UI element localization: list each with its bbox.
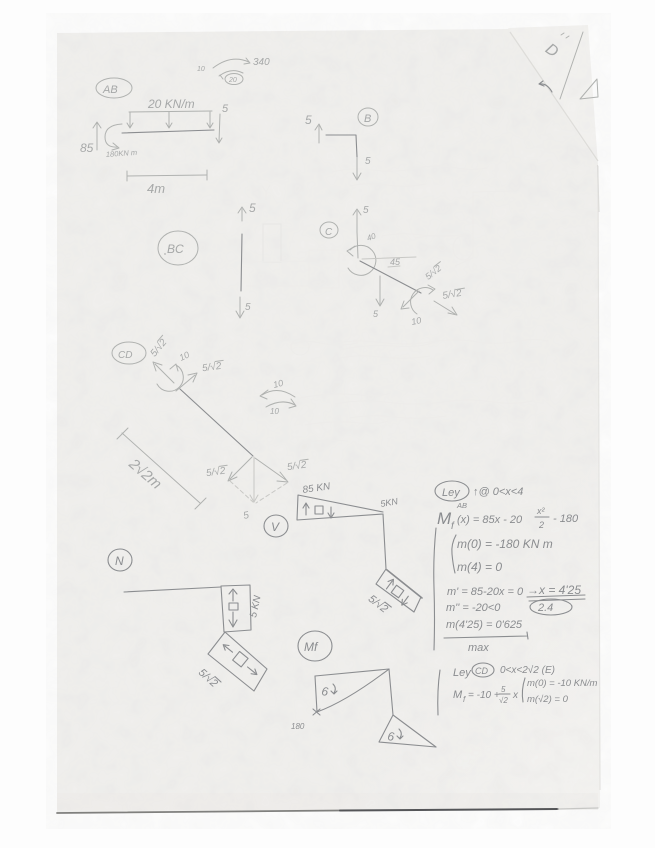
svg-text:C: C — [325, 227, 333, 238]
svg-text:10: 10 — [197, 66, 205, 73]
svg-text:↑@ 0<x<4: ↑@ 0<x<4 — [473, 486, 523, 498]
svg-text:max: max — [468, 642, 489, 654]
svg-text:m(√2) = 0: m(√2) = 0 — [527, 694, 569, 705]
svg-text:M: M — [453, 689, 463, 701]
svg-text:m(4'25) = 0'625: m(4'25) = 0'625 — [446, 619, 523, 631]
svg-text:N: N — [115, 554, 124, 568]
svg-text:4m: 4m — [147, 181, 165, 196]
svg-text:V: V — [271, 520, 280, 534]
svg-text:x²: x² — [536, 506, 546, 516]
svg-text:CD: CD — [475, 666, 488, 676]
svg-text:180: 180 — [291, 722, 305, 731]
svg-text:10: 10 — [410, 315, 422, 327]
svg-text:M: M — [437, 509, 452, 528]
svg-text:85: 85 — [80, 141, 94, 155]
svg-text:5: 5 — [249, 201, 256, 215]
svg-text:= -10 +: = -10 + — [468, 690, 500, 701]
svg-text:m(0) = -10 KN/m: m(0) = -10 KN/m — [527, 678, 598, 689]
svg-text:5: 5 — [245, 302, 251, 313]
svg-text:m(0) = -180 KN m: m(0) = -180 KN m — [457, 537, 553, 551]
svg-text:x: x — [512, 690, 519, 701]
svg-text:√2: √2 — [499, 696, 508, 705]
svg-text:5: 5 — [222, 103, 229, 115]
svg-text:Ley: Ley — [442, 487, 461, 499]
svg-text:(x) = 85x - 20: (x) = 85x - 20 — [457, 514, 523, 526]
svg-text:20 KN/m: 20 KN/m — [147, 97, 195, 111]
svg-text:m'' = -20<0: m'' = -20<0 — [446, 602, 501, 614]
svg-text:5: 5 — [305, 113, 312, 127]
svg-text:BC: BC — [167, 242, 184, 256]
svg-text:AB: AB — [102, 84, 118, 96]
svg-text:2.4: 2.4 — [537, 602, 553, 614]
svg-text:0<x<2√2 (E): 0<x<2√2 (E) — [500, 664, 555, 676]
svg-text:AB: AB — [456, 501, 467, 510]
svg-text:5: 5 — [365, 156, 371, 167]
svg-text:5: 5 — [501, 685, 506, 694]
svg-text:45: 45 — [390, 257, 401, 267]
svg-text:10: 10 — [270, 407, 279, 416]
svg-text:340: 340 — [253, 57, 270, 68]
svg-text:20: 20 — [228, 77, 237, 84]
svg-text:m(4) = 0: m(4) = 0 — [457, 560, 502, 574]
svg-text:m' = 85-20x = 0: m' = 85-20x = 0 — [447, 586, 524, 598]
svg-text:2: 2 — [538, 520, 544, 530]
svg-text:5: 5 — [363, 205, 369, 216]
svg-text:- 180: - 180 — [553, 513, 579, 525]
svg-text:Mf: Mf — [304, 640, 319, 654]
svg-text:CD: CD — [118, 350, 132, 361]
svg-text:B: B — [364, 113, 371, 125]
svg-text:Ley: Ley — [453, 667, 472, 679]
